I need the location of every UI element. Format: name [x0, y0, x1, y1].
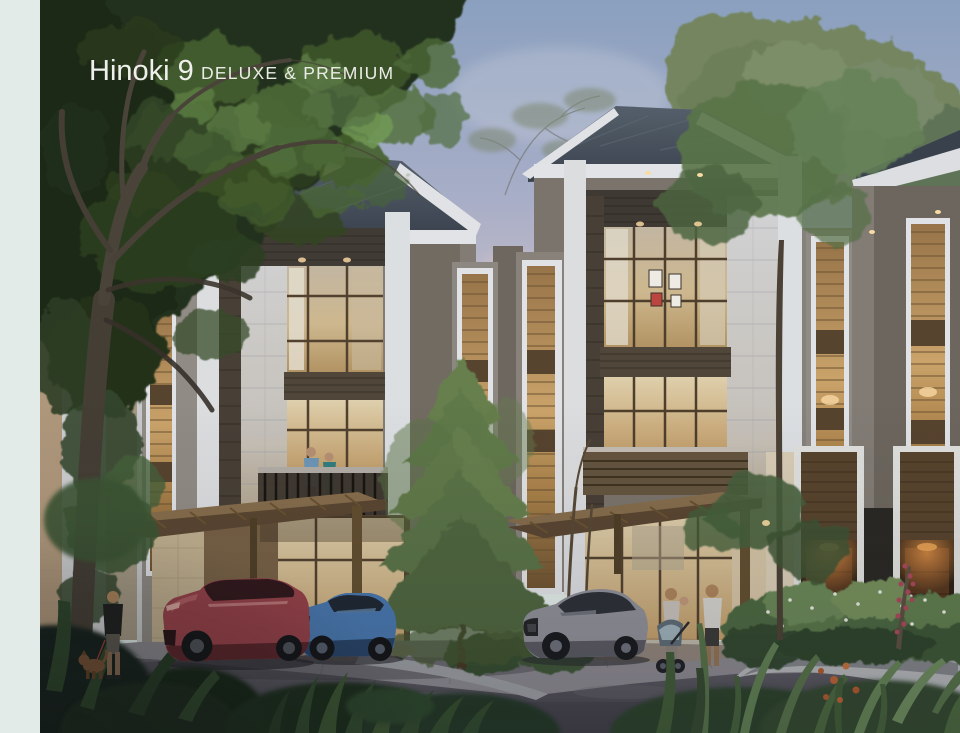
svg-text:DELUXE & PREMIUM: DELUXE & PREMIUM	[201, 63, 394, 83]
svg-text:Hinoki 9: Hinoki 9	[89, 55, 194, 87]
